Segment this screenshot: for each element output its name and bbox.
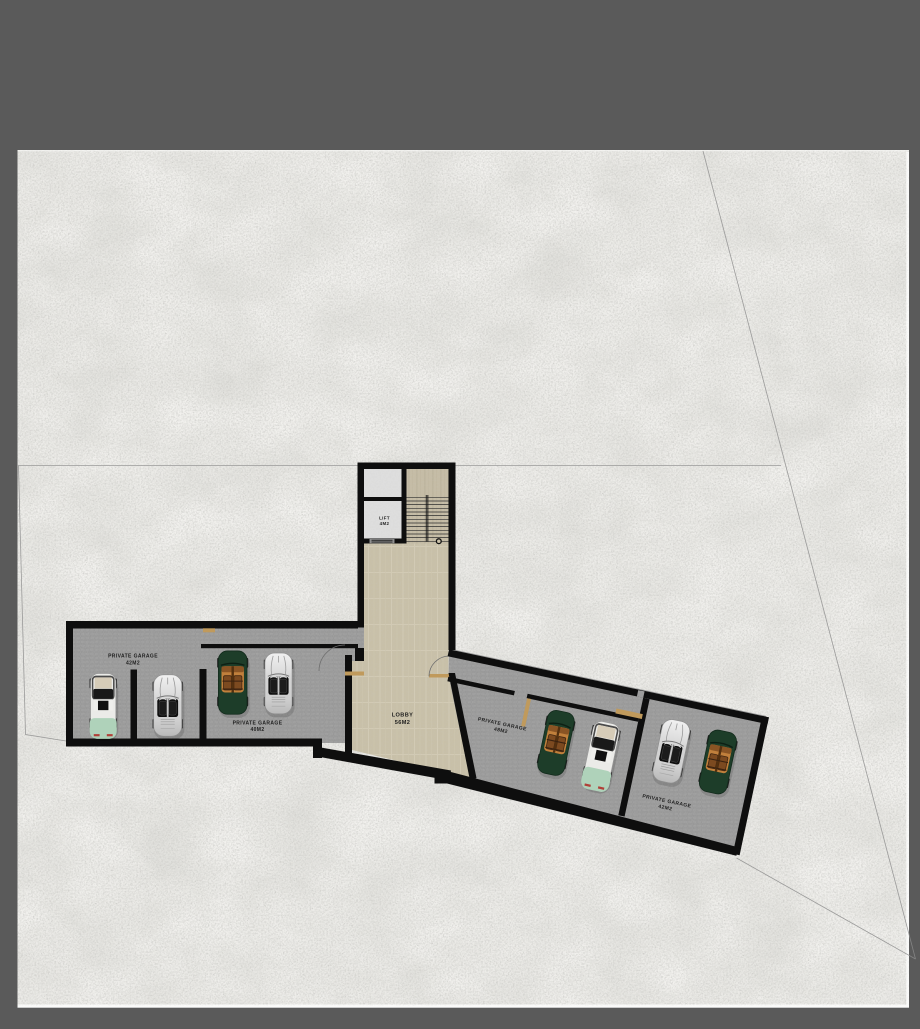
svg-text:4M2: 4M2 <box>380 521 390 526</box>
svg-text:56M2: 56M2 <box>395 720 411 726</box>
svg-text:40M2: 40M2 <box>250 727 264 733</box>
svg-text:42M2: 42M2 <box>126 660 140 666</box>
svg-text:LOBBY: LOBBY <box>392 713 414 719</box>
svg-text:LIFT: LIFT <box>379 516 390 521</box>
svg-text:PRIVATE GARAGE: PRIVATE GARAGE <box>233 720 283 726</box>
svg-text:PRIVATE GARAGE: PRIVATE GARAGE <box>108 654 158 660</box>
